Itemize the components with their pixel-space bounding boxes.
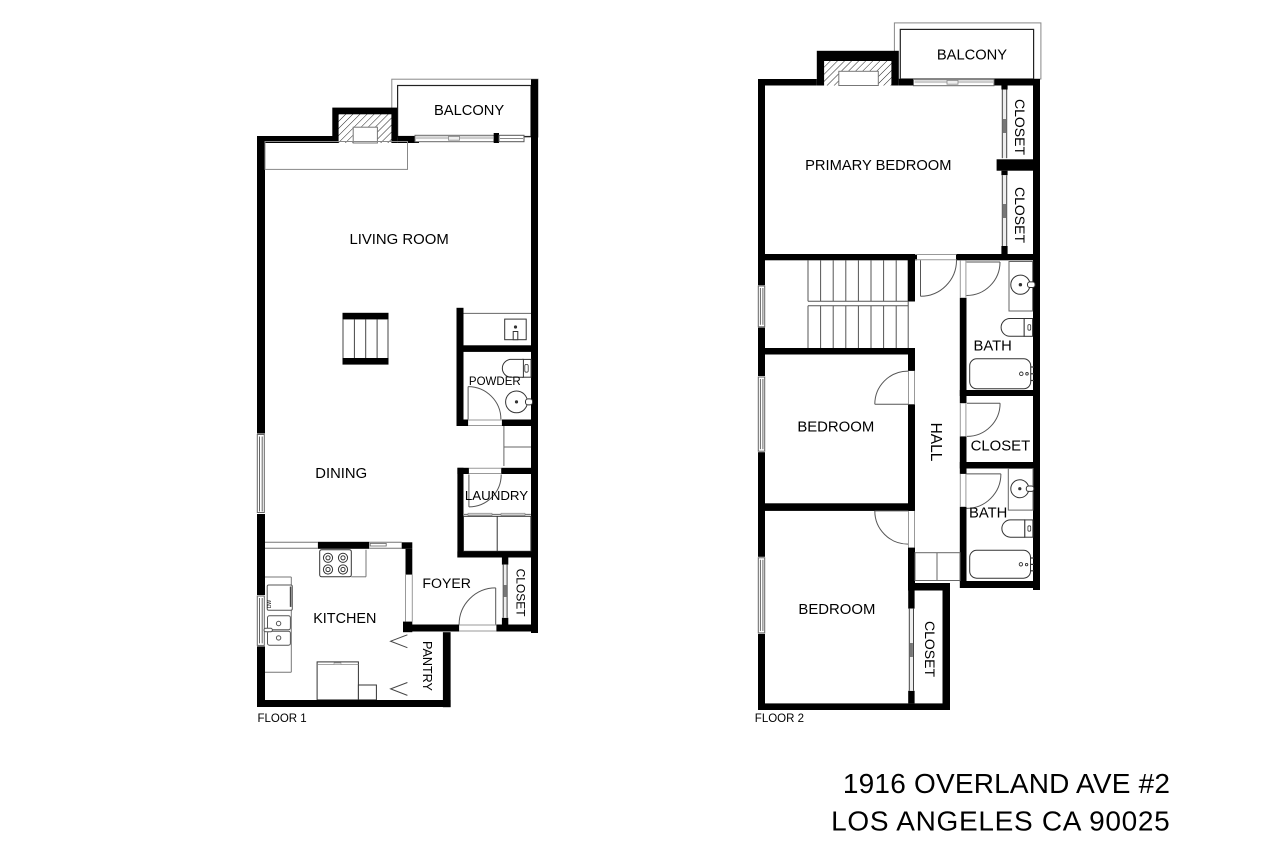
svg-text:CLOSET: CLOSET <box>971 439 1031 455</box>
svg-text:BALCONY: BALCONY <box>937 48 1007 64</box>
svg-text:CLOSET: CLOSET <box>922 621 938 677</box>
svg-text:FOYER: FOYER <box>422 575 471 591</box>
svg-text:LAUNDRY: LAUNDRY <box>465 488 528 503</box>
svg-text:LIVING ROOM: LIVING ROOM <box>349 232 448 248</box>
svg-text:BATH: BATH <box>969 506 1007 522</box>
svg-text:CLOSET: CLOSET <box>1012 187 1028 243</box>
svg-text:CLOSET: CLOSET <box>1012 99 1028 155</box>
svg-text:KITCHEN: KITCHEN <box>313 611 376 627</box>
svg-text:POWDER: POWDER <box>469 376 521 388</box>
svg-text:1916 OVERLAND AVE #2: 1916 OVERLAND AVE #2 <box>843 768 1170 799</box>
svg-text:FLOOR 2: FLOOR 2 <box>755 713 804 725</box>
svg-text:DW: DW <box>267 600 273 609</box>
svg-text:HALL: HALL <box>927 423 944 462</box>
svg-text:LOS ANGELES CA 90025: LOS ANGELES CA 90025 <box>831 806 1170 837</box>
svg-text:BATH: BATH <box>974 339 1012 355</box>
svg-text:BEDROOM: BEDROOM <box>798 602 875 618</box>
svg-text:DINING: DINING <box>315 466 367 482</box>
svg-text:FLOOR 1: FLOOR 1 <box>258 713 307 725</box>
svg-text:PANTRY: PANTRY <box>420 641 434 692</box>
svg-text:PRIMARY BEDROOM: PRIMARY BEDROOM <box>805 158 951 174</box>
svg-text:CLOSET: CLOSET <box>514 569 528 618</box>
svg-text:BEDROOM: BEDROOM <box>797 420 874 436</box>
svg-text:BALCONY: BALCONY <box>434 103 504 119</box>
